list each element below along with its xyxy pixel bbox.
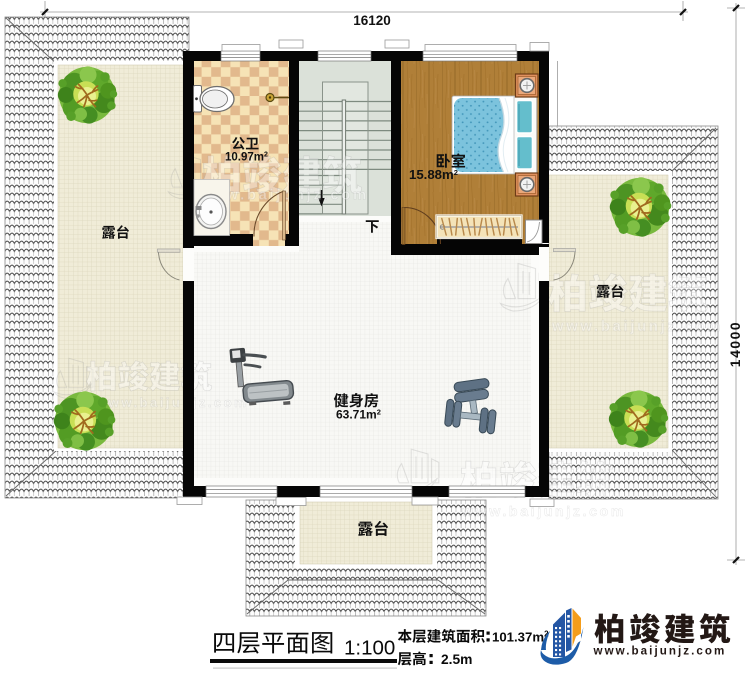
svg-text:15.88m2: 15.88m2	[409, 167, 458, 182]
svg-text:1:100: 1:100	[344, 637, 395, 660]
svg-text:16120: 16120	[353, 13, 391, 28]
svg-text:2.5m: 2.5m	[441, 652, 472, 667]
svg-text:www.baijunjz.com: www.baijunjz.com	[95, 395, 248, 410]
svg-text:www.baijunjz.com: www.baijunjz.com	[551, 319, 723, 335]
svg-text:63.71m2: 63.71m2	[336, 408, 381, 422]
svg-text:10.97m2: 10.97m2	[225, 152, 268, 164]
svg-text:www.baijunjz.com: www.baijunjz.com	[593, 645, 727, 658]
svg-text:101.37m2: 101.37m2	[492, 630, 549, 645]
svg-text:14000: 14000	[728, 321, 743, 367]
